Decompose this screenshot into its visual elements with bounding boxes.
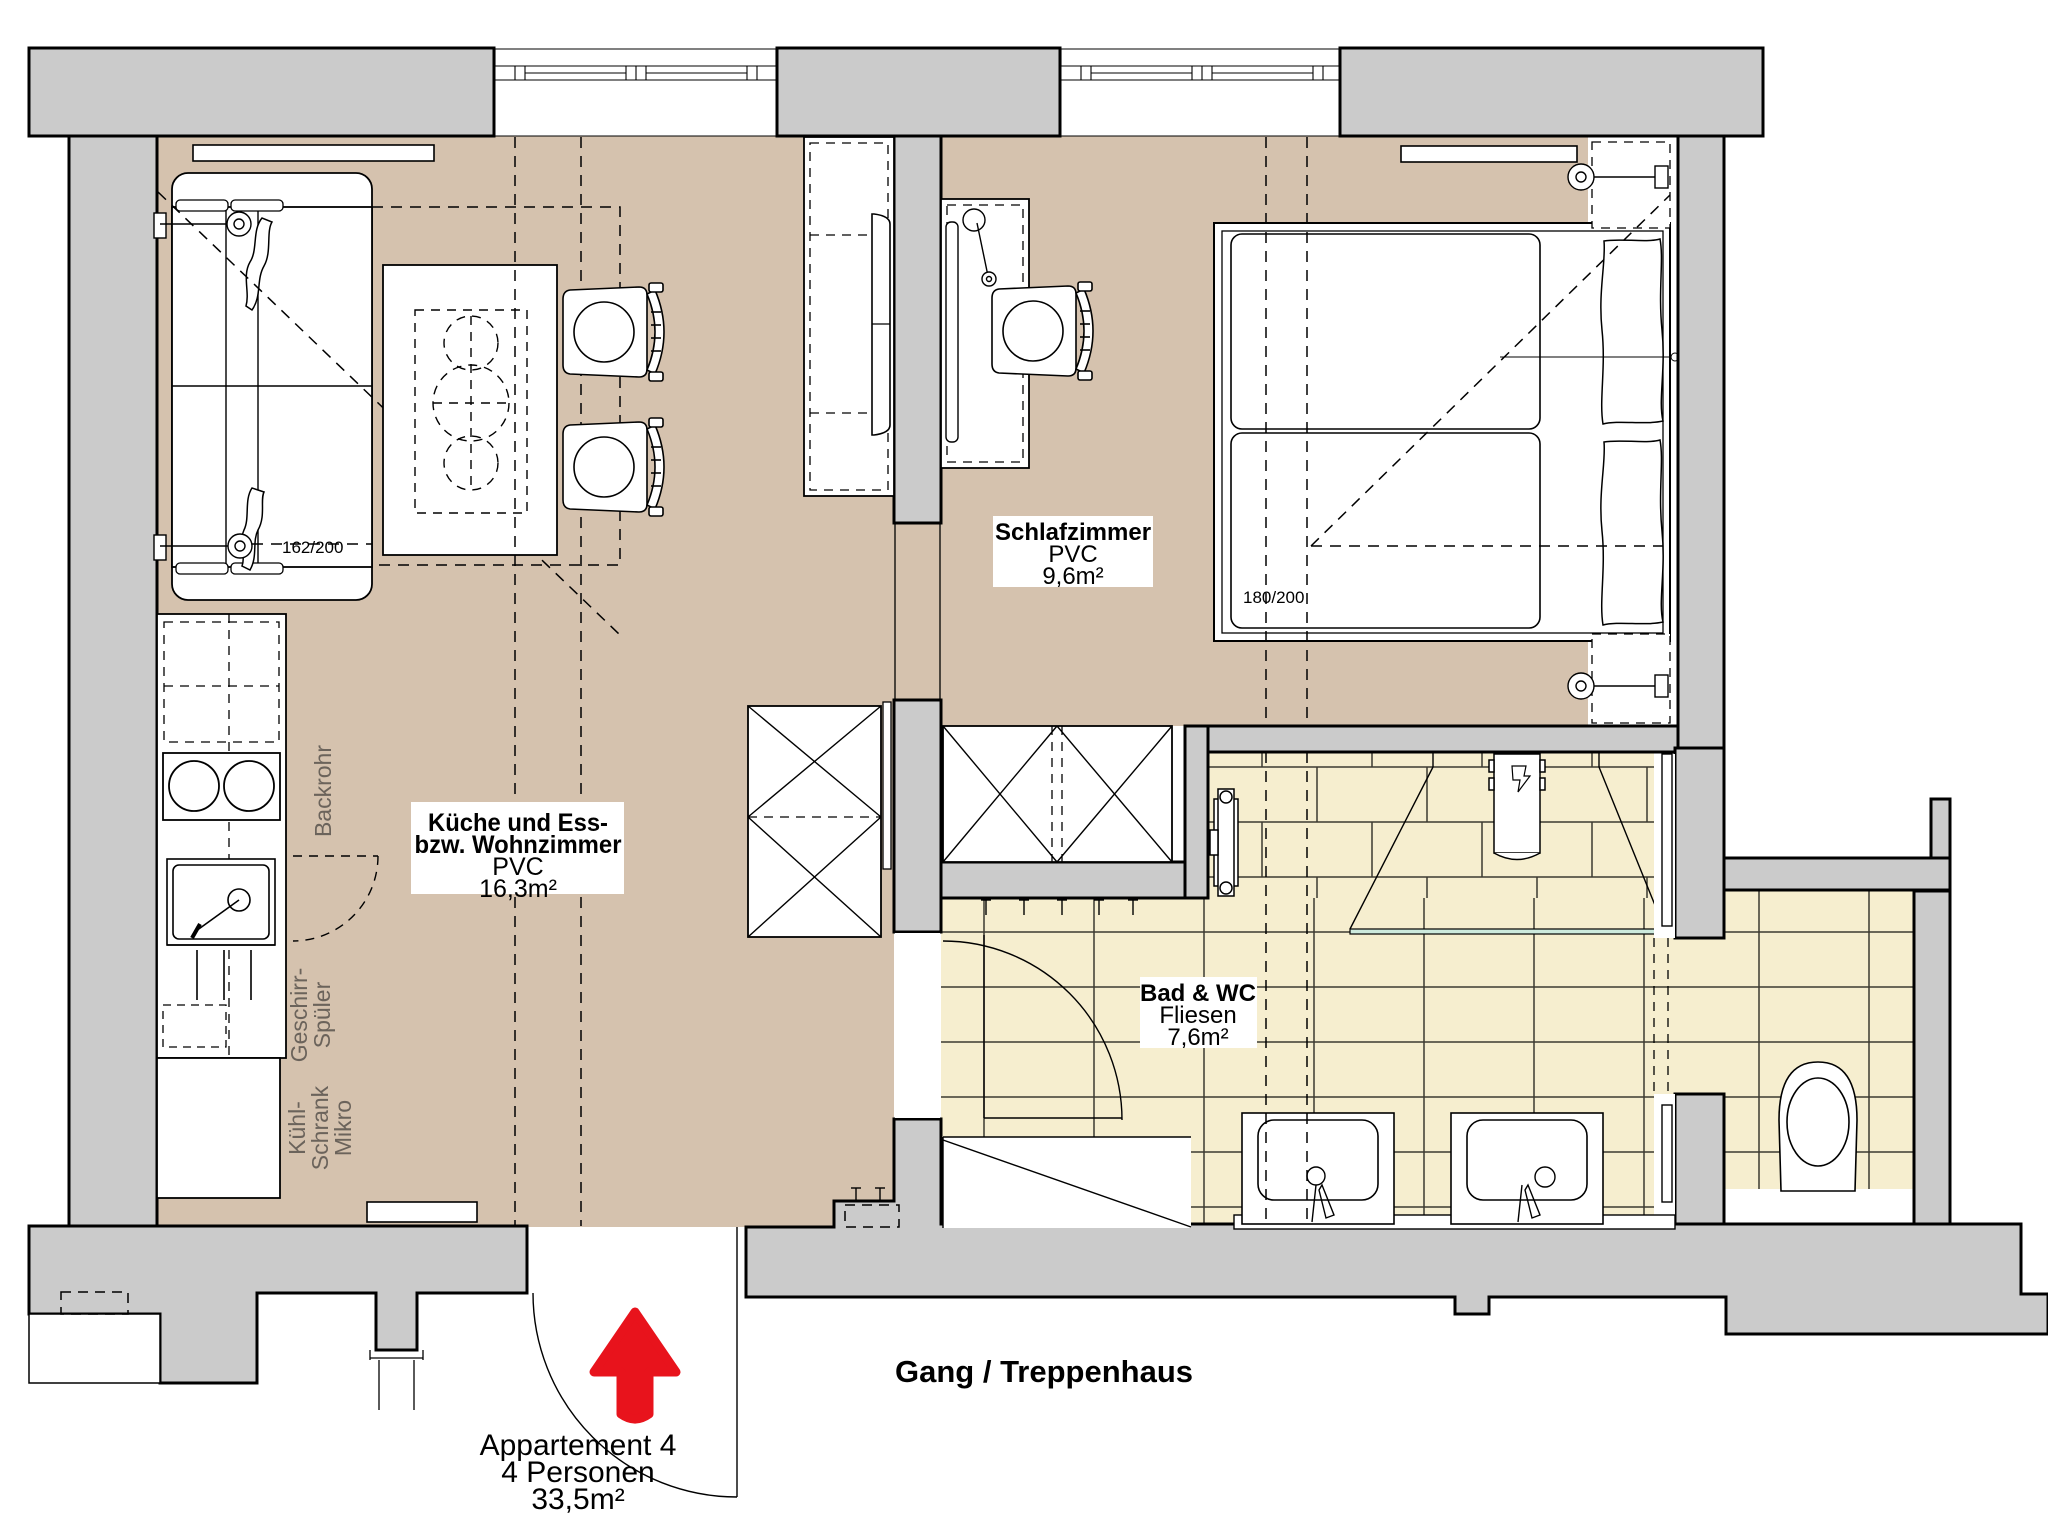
- svg-text:7,6m²: 7,6m²: [1167, 1024, 1228, 1051]
- svg-text:16,3m²: 16,3m²: [479, 875, 557, 903]
- svg-text:9,6m²: 9,6m²: [1042, 563, 1103, 590]
- svg-text:Backrohr: Backrohr: [310, 745, 336, 837]
- svg-text:180/200: 180/200: [1243, 588, 1304, 607]
- svg-text:Spüler: Spüler: [309, 981, 335, 1048]
- svg-text:Gang / Treppenhaus: Gang / Treppenhaus: [895, 1354, 1193, 1389]
- svg-text:162/200: 162/200: [282, 538, 343, 557]
- svg-text:Mikro: Mikro: [330, 1100, 356, 1156]
- svg-text:33,5m²: 33,5m²: [531, 1483, 624, 1516]
